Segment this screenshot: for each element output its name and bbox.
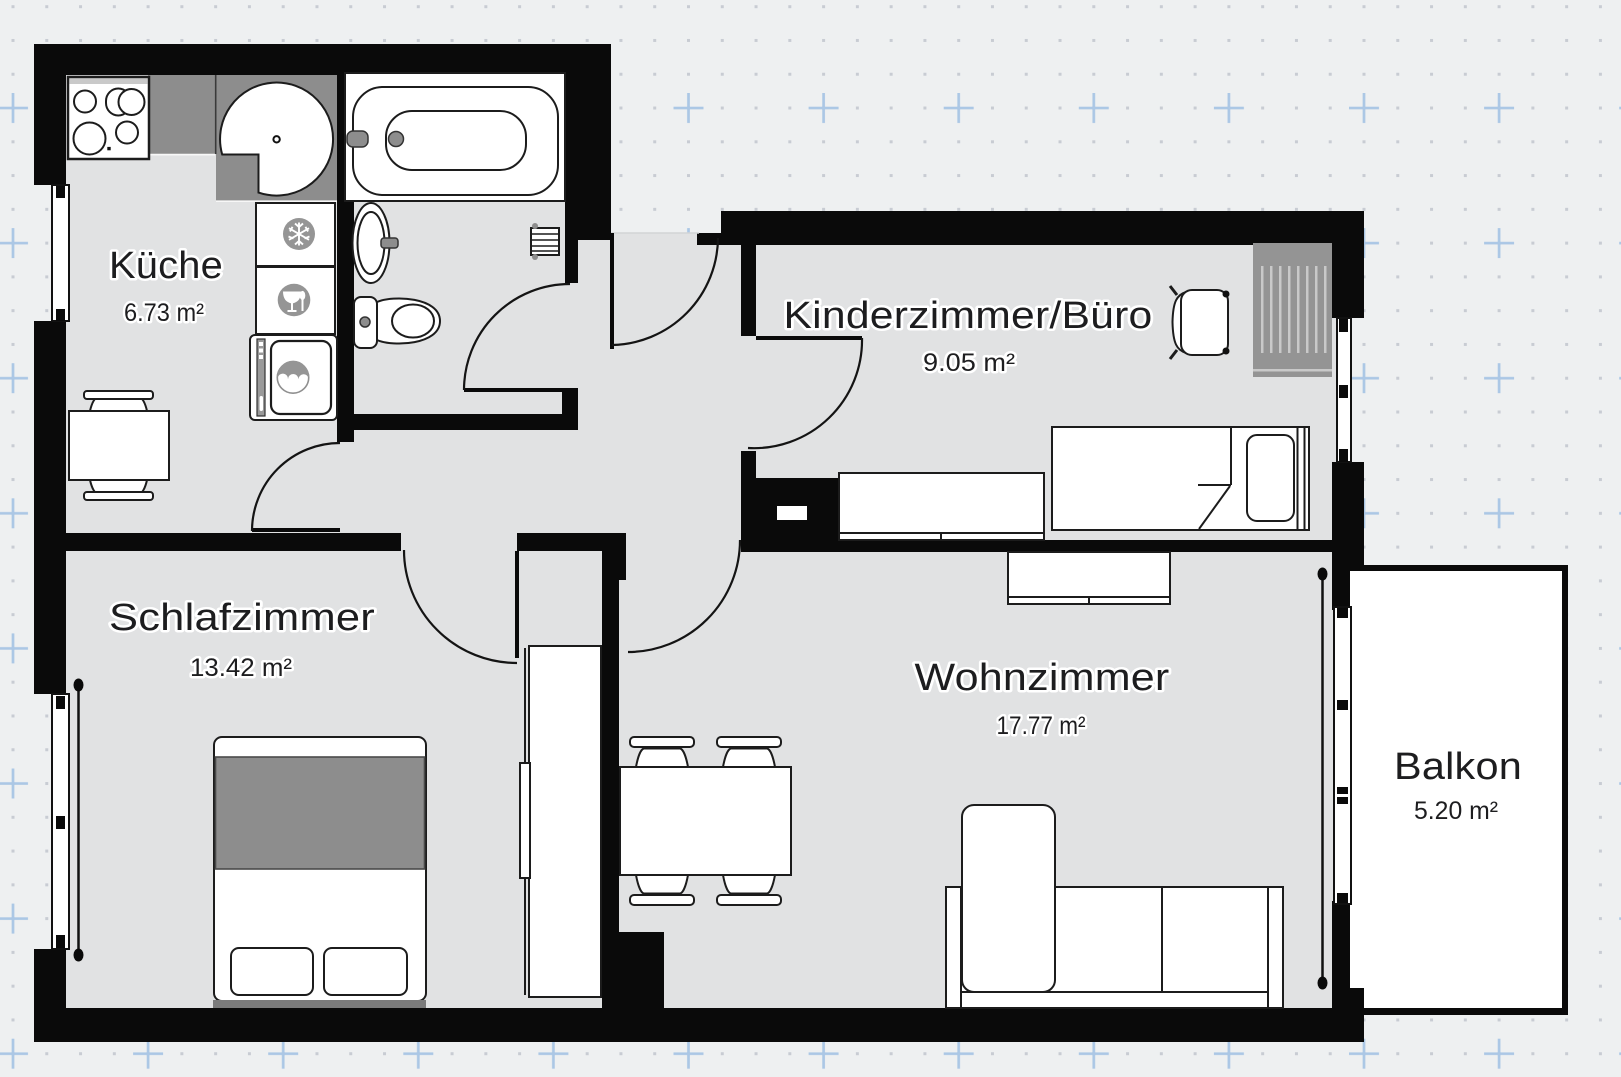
svg-text:Balkon: Balkon bbox=[1394, 746, 1522, 788]
svg-text:Kinderzimmer/Büro: Kinderzimmer/Büro bbox=[784, 295, 1153, 337]
svg-text:Wohnzimmer: Wohnzimmer bbox=[915, 657, 1170, 699]
svg-text:6.73 m²: 6.73 m² bbox=[124, 299, 204, 327]
svg-text:13.42 m²: 13.42 m² bbox=[190, 654, 292, 682]
svg-text:9.05 m²: 9.05 m² bbox=[923, 349, 1015, 377]
svg-text:Küche: Küche bbox=[109, 245, 223, 287]
svg-text:Schlafzimmer: Schlafzimmer bbox=[109, 597, 375, 639]
svg-text:5.20 m²: 5.20 m² bbox=[1414, 797, 1498, 825]
svg-text:17.77 m²: 17.77 m² bbox=[997, 712, 1086, 740]
